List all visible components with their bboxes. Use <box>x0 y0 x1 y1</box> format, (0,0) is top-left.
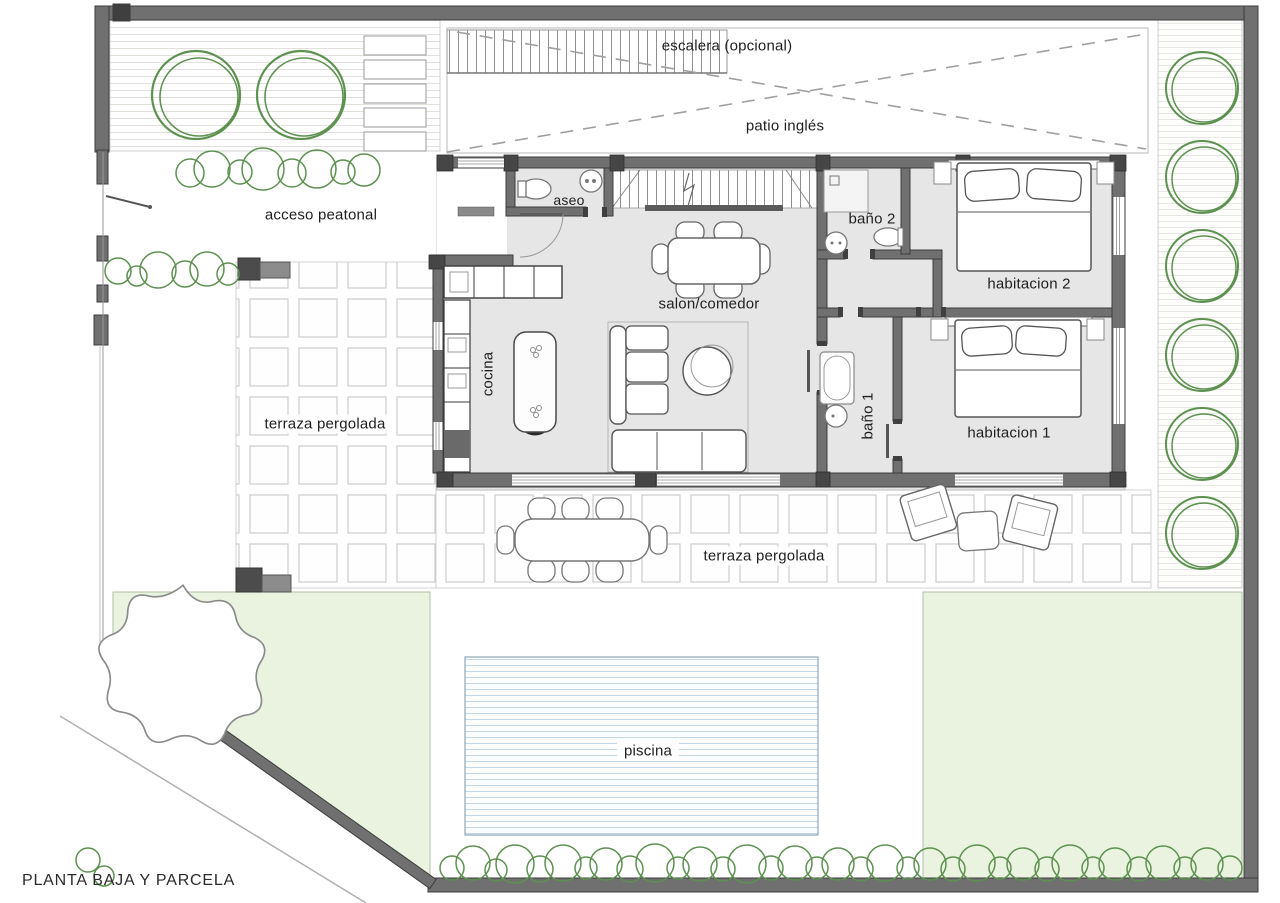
bed-habitacion1 <box>931 317 1104 417</box>
entry-steps <box>364 36 426 151</box>
label-salon-comedor: salon/comedor <box>659 296 760 313</box>
label-habitacion2: habitacion 2 <box>987 276 1070 293</box>
floor-plan-page: escalera (opcional) patio inglés acceso … <box>0 0 1280 903</box>
hedge-row <box>176 148 380 190</box>
pergola-pillar <box>260 262 290 278</box>
pergola-pillar <box>238 258 260 280</box>
label-escalera: escalera (opcional) <box>662 38 793 55</box>
label-cocina: cocina <box>480 352 497 397</box>
label-terraza-oeste: terraza pergolada <box>258 415 393 434</box>
pergola-pillar <box>262 575 291 592</box>
label-habitacion1: habitacion 1 <box>967 425 1050 442</box>
entry-threshold <box>458 207 494 216</box>
interior-stair <box>612 170 818 211</box>
label-bano1: baño 1 <box>860 392 877 439</box>
plan-title: PLANTA BAJA Y PARCELA <box>22 872 235 890</box>
label-aseo: aseo <box>553 192 584 208</box>
plan-drawing <box>0 0 1280 903</box>
kitchen-island <box>514 332 556 434</box>
label-terraza-sur: terraza pergolada <box>697 547 832 566</box>
label-acceso-peatonal: acceso peatonal <box>265 207 377 224</box>
sliding-door <box>886 424 889 458</box>
coffee-table <box>683 347 731 395</box>
label-patio-ingles: patio inglés <box>746 118 824 135</box>
label-piscina: piscina <box>617 742 679 761</box>
hedge-row <box>105 252 239 288</box>
label-bano2: baño 2 <box>848 211 895 228</box>
gate-leaf <box>106 196 150 207</box>
sliding-door <box>807 350 810 392</box>
bed-habitacion2 <box>934 160 1114 271</box>
pergola-pillar <box>236 568 262 592</box>
